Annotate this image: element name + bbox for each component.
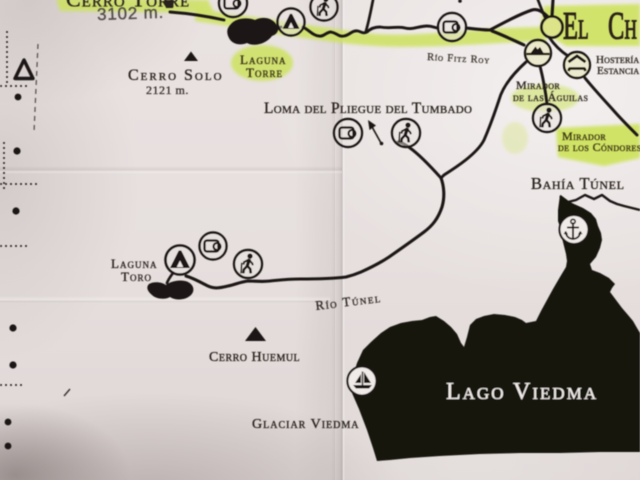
svg-text:El: El xyxy=(563,5,589,48)
svg-text:Torre: Torre xyxy=(246,65,283,80)
svg-text:Estancia La: Estancia La xyxy=(597,65,640,77)
svg-text:Lago Viedma: Lago Viedma xyxy=(446,379,598,405)
svg-text:Bahía Túnel: Bahía Túnel xyxy=(531,174,625,193)
svg-text:Loma del Pliegue del Tumbado: Loma del Pliegue del Tumbado xyxy=(264,100,472,117)
svg-text:Ch: Ch xyxy=(608,5,637,48)
svg-text:3102 m.: 3102 m. xyxy=(97,3,165,24)
svg-text:Toro: Toro xyxy=(121,269,152,284)
svg-text:Glaciar Viedma: Glaciar Viedma xyxy=(252,417,359,432)
svg-text:de las Águilas: de las Águilas xyxy=(513,90,588,104)
svg-text:Río Fitz Roy: Río Fitz Roy xyxy=(427,52,491,66)
svg-text:Cerro Solo: Cerro Solo xyxy=(128,67,224,84)
svg-text:de los Cóndores: de los Cóndores xyxy=(558,140,640,154)
svg-text:Río Túnel: Río Túnel xyxy=(315,290,383,313)
svg-text:Cerro Huemul: Cerro Huemul xyxy=(209,350,300,365)
svg-text:2121 m.: 2121 m. xyxy=(146,83,189,97)
